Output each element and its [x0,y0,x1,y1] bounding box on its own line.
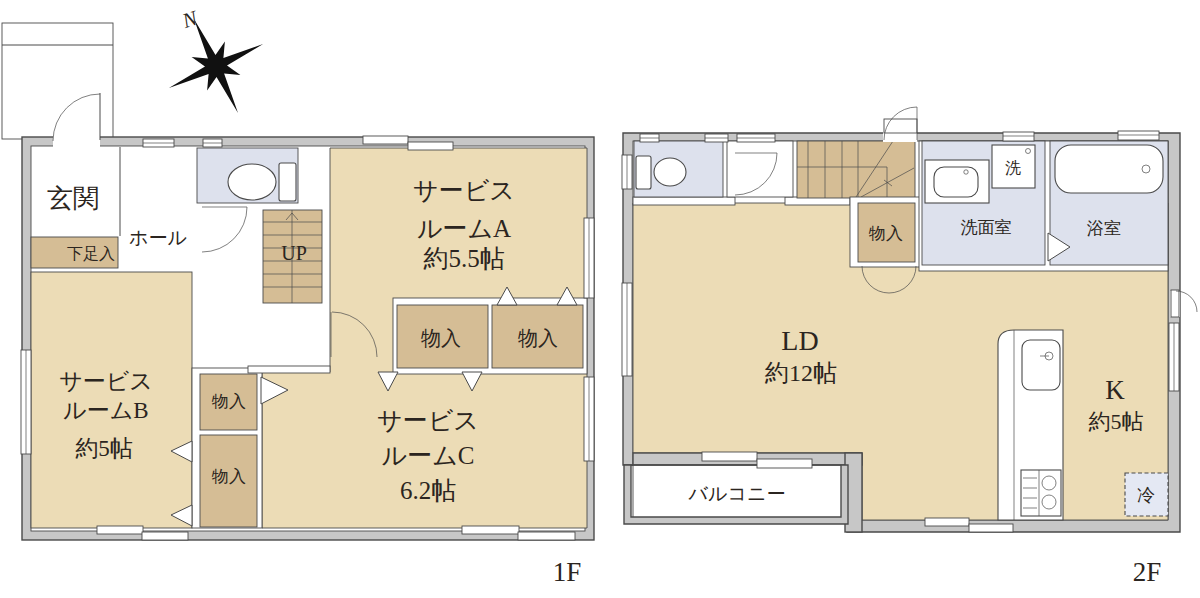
entrance-opening [53,135,100,147]
compass-north-label: N [179,5,202,33]
stair-hall-2f [727,141,793,197]
entrance-label: 玄関 [47,184,99,213]
balcony-door-sash-1 [702,452,757,461]
washroom-vanity [925,160,989,203]
floor-plan-drawing: N [0,0,1200,598]
fridge-label: 冷 [1137,485,1155,505]
top-door-opening [883,132,917,142]
closet-b2-label: 物入 [211,467,246,486]
closet-a1-label: 物入 [421,327,461,349]
closet-b1-label: 物入 [211,392,246,411]
toilet-fixture-1f [228,163,296,201]
shoe-storage-label: 下足入 [67,245,115,262]
hall-label: ホール [129,227,187,248]
balcony-door-sash-2 [757,459,812,468]
bathroom-label: 浴室 [1087,219,1121,238]
room-b-label-3: 約5帖 [75,436,133,461]
balcony-label: バルコニー [688,483,786,504]
ld-label-1: LD [781,325,818,356]
room-c-top-wall [248,366,330,373]
room-c-label-2: ルームC [382,442,475,469]
room-b-label-2: ルームB [63,398,148,423]
ld-label-2: 約12帖 [764,360,837,386]
washer-label: 洗 [1005,159,1021,176]
right-door-leaf [1171,290,1179,317]
kitchen-sink [1022,340,1060,390]
top-door-threshold [884,119,917,133]
compass-star [169,19,263,113]
toilet-fixture-2f [636,156,686,189]
floor-1f-label: 1F [553,557,582,587]
floor-1f: 玄関 ホール 下足入 UP サービス ルームA 約5.5帖 物入 物入 サービス… [2,23,594,587]
washroom-label: 洗面室 [961,218,1012,237]
stairs-up-label: UP [281,242,307,264]
room-a-label-1: サービス [413,177,515,204]
kitchen-label-2: 約5帖 [1089,409,1144,434]
floor-plan-page: N [0,0,1200,598]
closet-2f-label: 物入 [868,224,903,243]
room-c-label-1: サービス [377,407,479,434]
porch [2,23,113,139]
bathtub [1055,145,1163,193]
kitchen-counter [998,330,1063,520]
room-a-label-3: 約5.5帖 [422,245,504,272]
compass-rose: N [169,5,263,113]
stove [1021,470,1061,516]
room-c-label-3: 6.2帖 [400,477,456,504]
closet-a2-label: 物入 [518,327,558,349]
kitchen-label-1: K [1105,375,1125,405]
stairs-2f [797,141,915,198]
room-a-label-2: ルームA [417,215,511,242]
room-b-label-1: サービス [59,369,153,394]
ld-north-wall-1 [633,197,735,205]
floor-2f: LD 約12帖 K 約5帖 洗面室 浴室 洗 物入 バルコニー 冷 2F [622,107,1197,587]
floor-2f-label: 2F [1133,557,1162,587]
